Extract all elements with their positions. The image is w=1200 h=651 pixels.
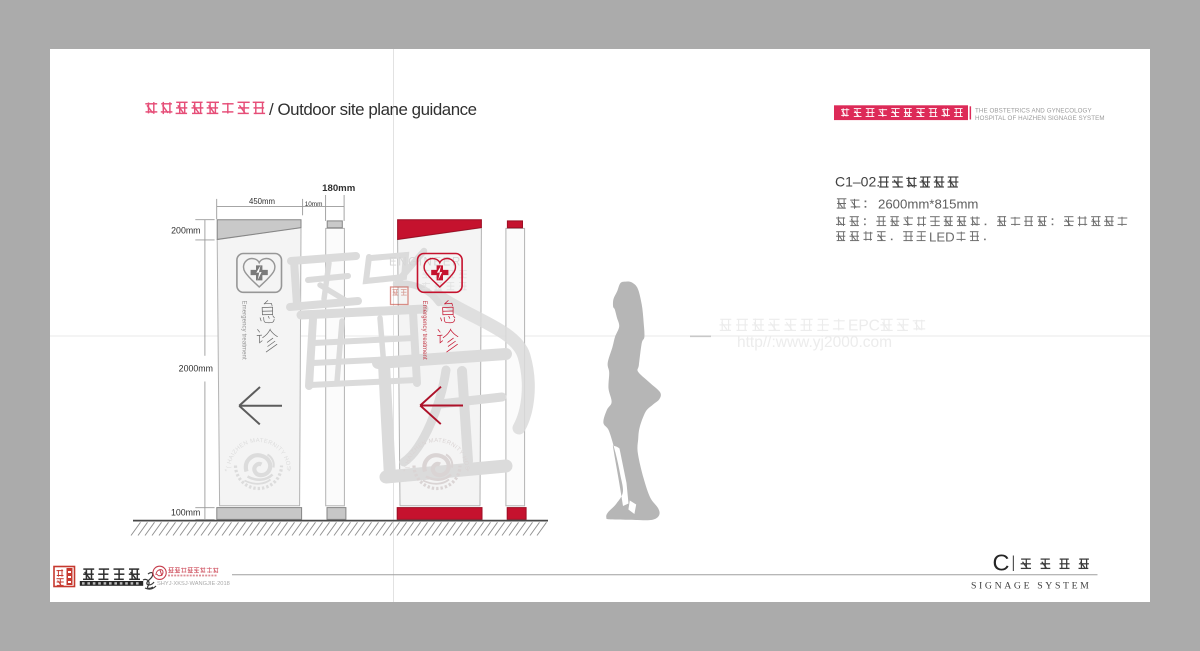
svg-text:/ Outdoor site plane guidance: / Outdoor site plane guidance xyxy=(269,100,477,119)
svg-text:450mm: 450mm xyxy=(249,197,275,206)
svg-text:HOSPITAL OF HAIZHEN SIGNAGE: HOSPITAL OF HAIZHEN SIGNAGE SYSTEM xyxy=(975,115,1105,122)
svg-text:C1–02.: C1–02. xyxy=(835,173,880,189)
svg-text:SIGNAGE SYSTEM: SIGNAGE SYSTEM xyxy=(971,580,1092,591)
svg-text:LED: LED xyxy=(929,229,955,244)
svg-text:C: C xyxy=(993,550,1010,576)
svg-text:180mm: 180mm xyxy=(322,183,355,194)
svg-text:THE OBSTETRICS AND GYNECOLOGY: THE OBSTETRICS AND GYNECOLOGY xyxy=(975,107,1092,114)
svg-text:http//:www.yj2000.com: http//:www.yj2000.com xyxy=(737,334,892,351)
svg-text:SHYJ·XKSJ·WANGJIE·2018: SHYJ·XKSJ·WANGJIE·2018 xyxy=(157,581,230,587)
svg-text:Emergency treatment: Emergency treatment xyxy=(421,301,427,360)
svg-text:200mm: 200mm xyxy=(171,225,200,235)
svg-text:2000mm: 2000mm xyxy=(179,364,213,374)
svg-text:2600mm*815mm: 2600mm*815mm xyxy=(878,197,978,212)
svg-text:Emergency treatment: Emergency treatment xyxy=(241,301,247,360)
svg-text:EPC: EPC xyxy=(848,318,880,335)
svg-text:10mm: 10mm xyxy=(305,201,323,208)
svg-text:100mm: 100mm xyxy=(171,507,200,517)
